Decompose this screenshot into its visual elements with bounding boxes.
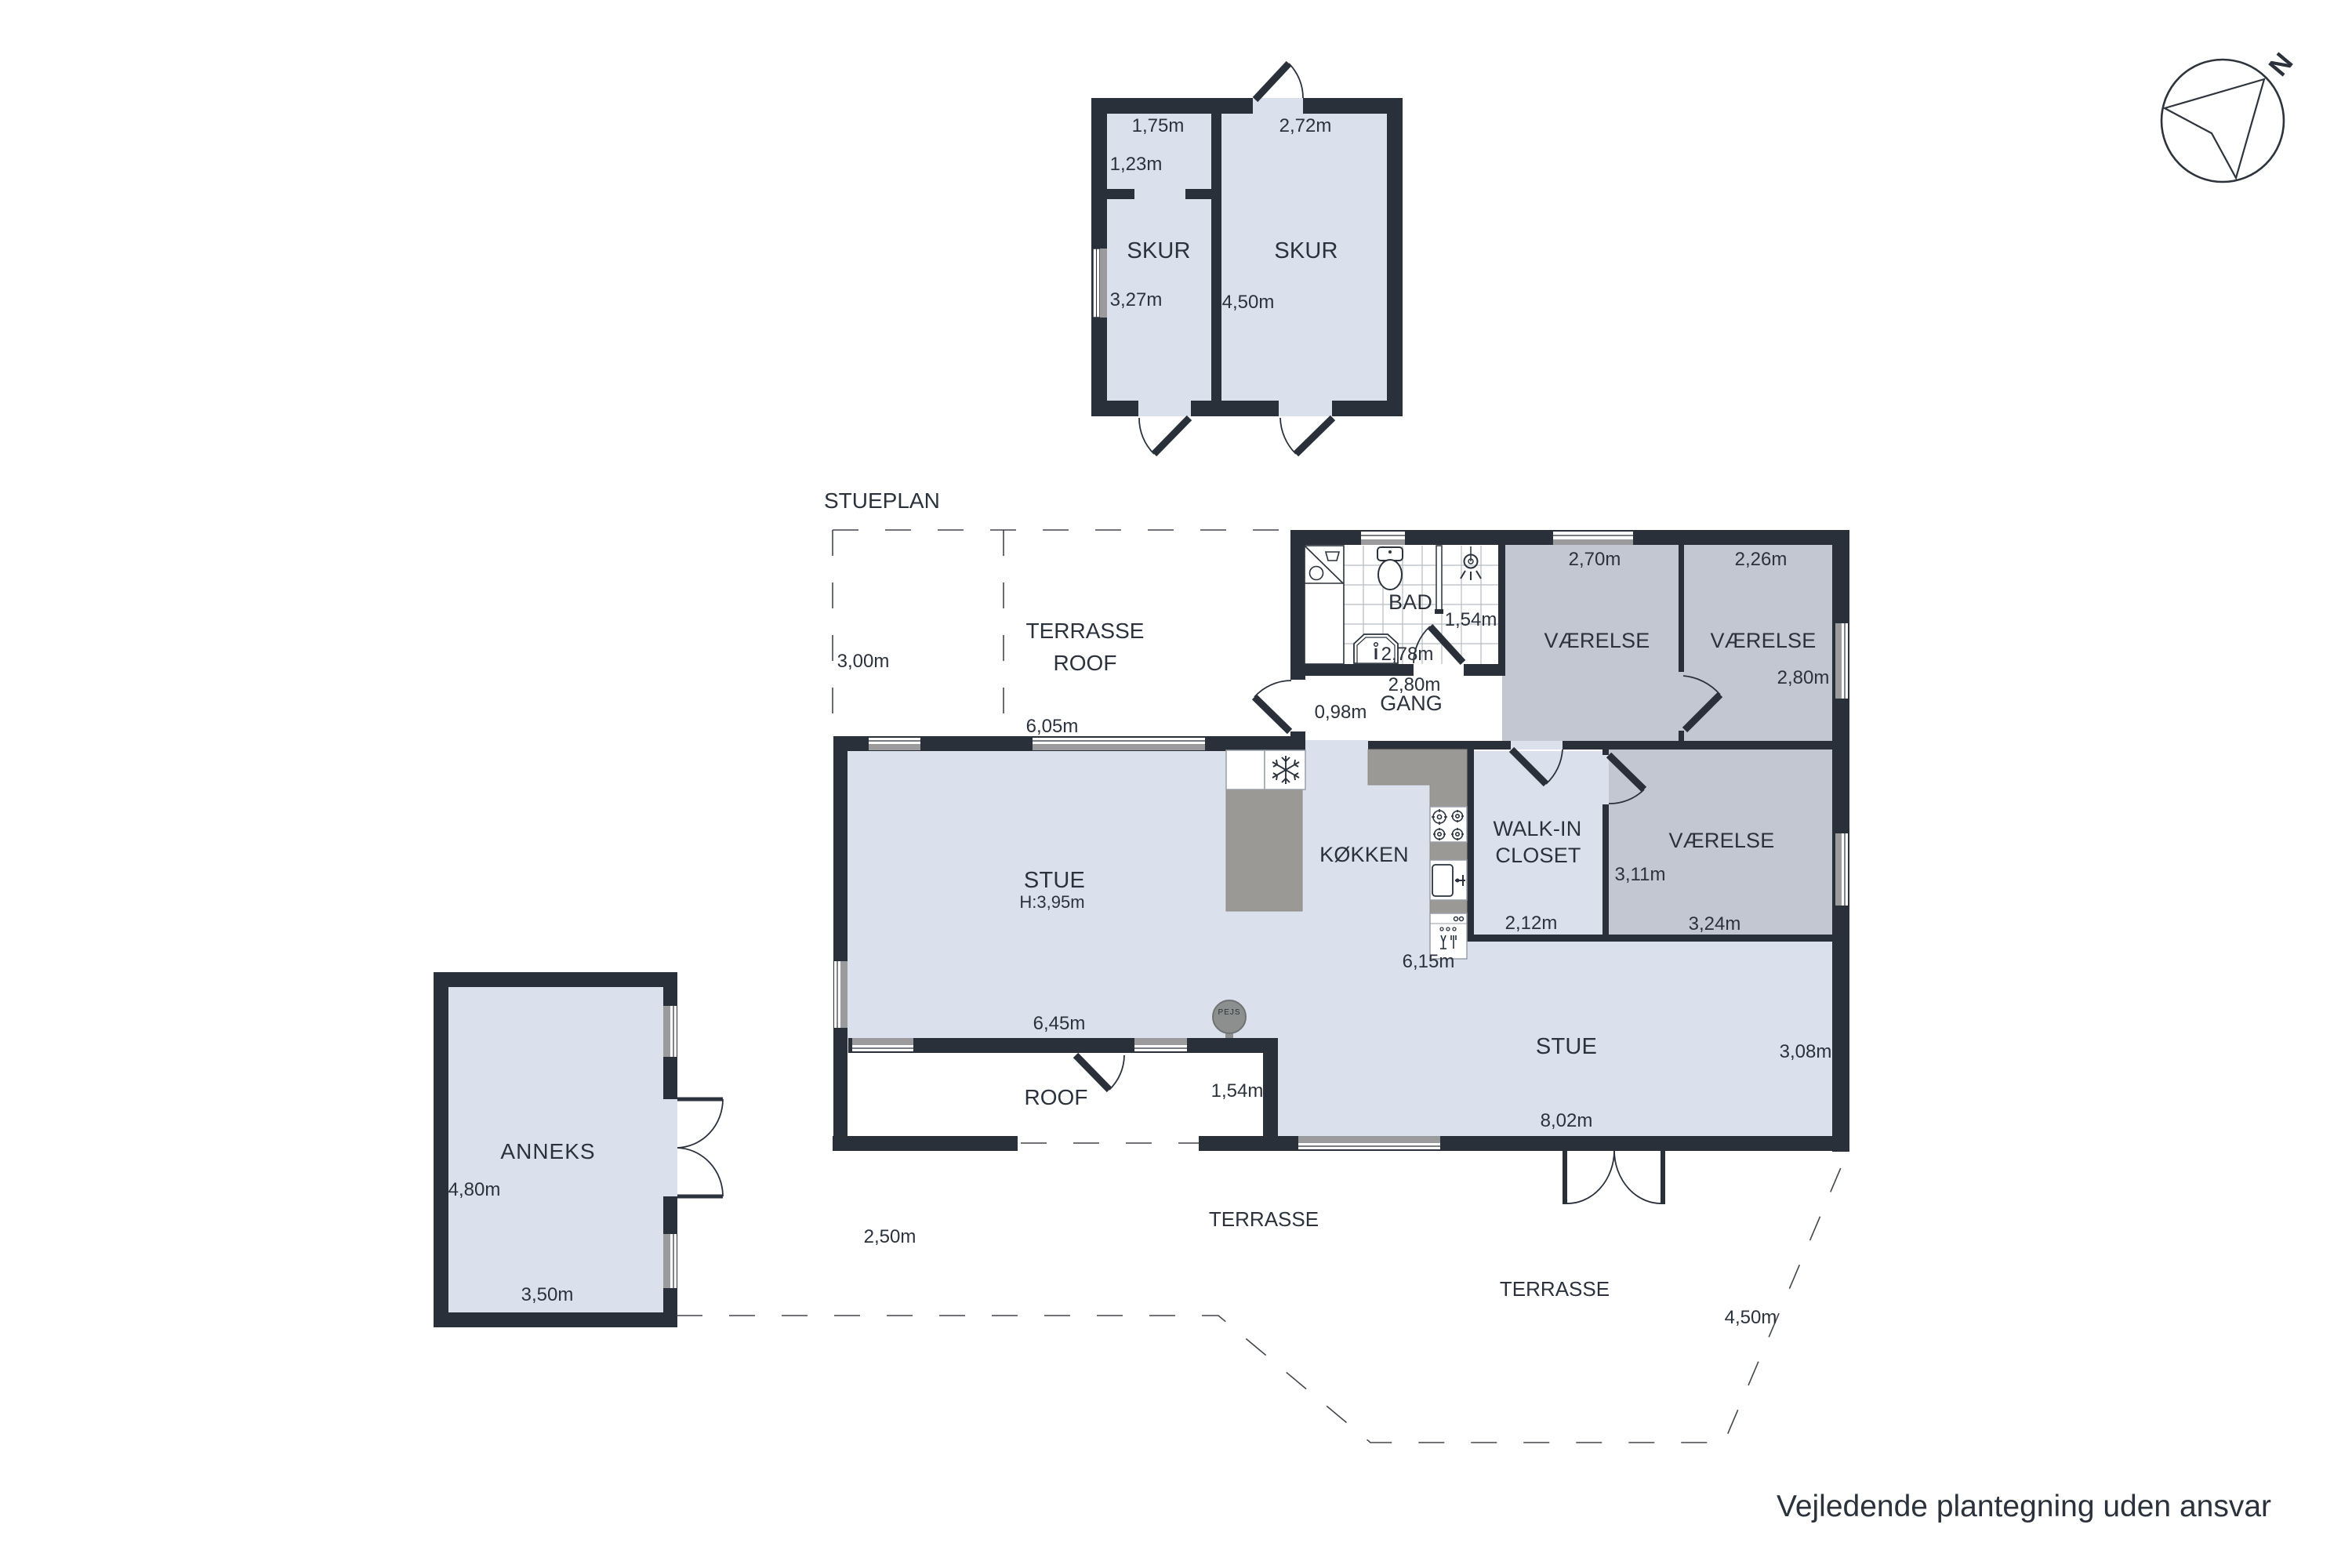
svg-text:2,70m: 2,70m <box>1569 549 1621 570</box>
svg-text:BAD: BAD <box>1388 590 1432 614</box>
svg-text:TERRASSE: TERRASSE <box>1209 1207 1319 1231</box>
svg-text:3,27m: 3,27m <box>1110 289 1163 310</box>
svg-text:6,45m: 6,45m <box>1033 1013 1086 1034</box>
svg-text:STUE: STUE <box>1536 1034 1597 1059</box>
svg-text:3,11m: 3,11m <box>1615 864 1666 885</box>
svg-text:Vejledende plantegning uden an: Vejledende plantegning uden ansvar <box>1777 1490 2271 1523</box>
svg-text:TERRASSE: TERRASSE <box>1026 619 1145 643</box>
svg-text:1,75m: 1,75m <box>1132 115 1185 136</box>
svg-text:H:3,95m: H:3,95m <box>1019 892 1084 912</box>
svg-text:VÆRELSE: VÆRELSE <box>1544 629 1650 652</box>
svg-text:KØKKEN: KØKKEN <box>1319 843 1409 866</box>
svg-text:VÆRELSE: VÆRELSE <box>1669 829 1775 852</box>
svg-text:2,80m: 2,80m <box>1777 667 1830 688</box>
svg-text:4,80m: 4,80m <box>448 1179 501 1200</box>
svg-text:ANNEKS: ANNEKS <box>500 1139 595 1163</box>
svg-text:8,02m: 8,02m <box>1541 1110 1593 1131</box>
svg-text:2,50m: 2,50m <box>864 1226 916 1247</box>
svg-text:ROOF: ROOF <box>1054 651 1117 675</box>
svg-text:4,50m: 4,50m <box>1222 292 1275 313</box>
svg-text:6,05m: 6,05m <box>1026 716 1079 737</box>
svg-text:1,54m: 1,54m <box>1211 1080 1264 1102</box>
svg-text:0,98m: 0,98m <box>1315 702 1367 723</box>
svg-text:TERRASSE: TERRASSE <box>1500 1277 1610 1301</box>
svg-text:CLOSET: CLOSET <box>1495 844 1581 867</box>
svg-text:3,08m: 3,08m <box>1780 1041 1832 1062</box>
svg-text:2,12m: 2,12m <box>1505 913 1558 934</box>
svg-text:3,50m: 3,50m <box>521 1284 574 1305</box>
svg-text:3,24m: 3,24m <box>1689 913 1741 935</box>
svg-text:2,26m: 2,26m <box>1735 549 1788 570</box>
svg-text:6,15m: 6,15m <box>1403 951 1455 972</box>
svg-text:2,78m: 2,78m <box>1381 644 1434 665</box>
svg-text:WALK-IN: WALK-IN <box>1494 817 1582 840</box>
svg-text:4,50m: 4,50m <box>1725 1307 1777 1328</box>
svg-text:PEJS: PEJS <box>1218 1008 1240 1017</box>
svg-text:VÆRELSE: VÆRELSE <box>1711 629 1817 652</box>
svg-text:GANG: GANG <box>1380 691 1443 715</box>
svg-text:1,54m: 1,54m <box>1445 609 1497 630</box>
svg-text:1,23m: 1,23m <box>1110 154 1163 175</box>
svg-text:ROOF: ROOF <box>1025 1085 1088 1109</box>
svg-text:2,72m: 2,72m <box>1279 115 1332 136</box>
svg-text:SKUR: SKUR <box>1127 238 1190 263</box>
svg-text:STUEPLAN: STUEPLAN <box>824 488 940 513</box>
svg-text:STUE: STUE <box>1024 868 1085 893</box>
svg-text:SKUR: SKUR <box>1274 238 1338 263</box>
svg-text:3,00m: 3,00m <box>837 651 890 672</box>
